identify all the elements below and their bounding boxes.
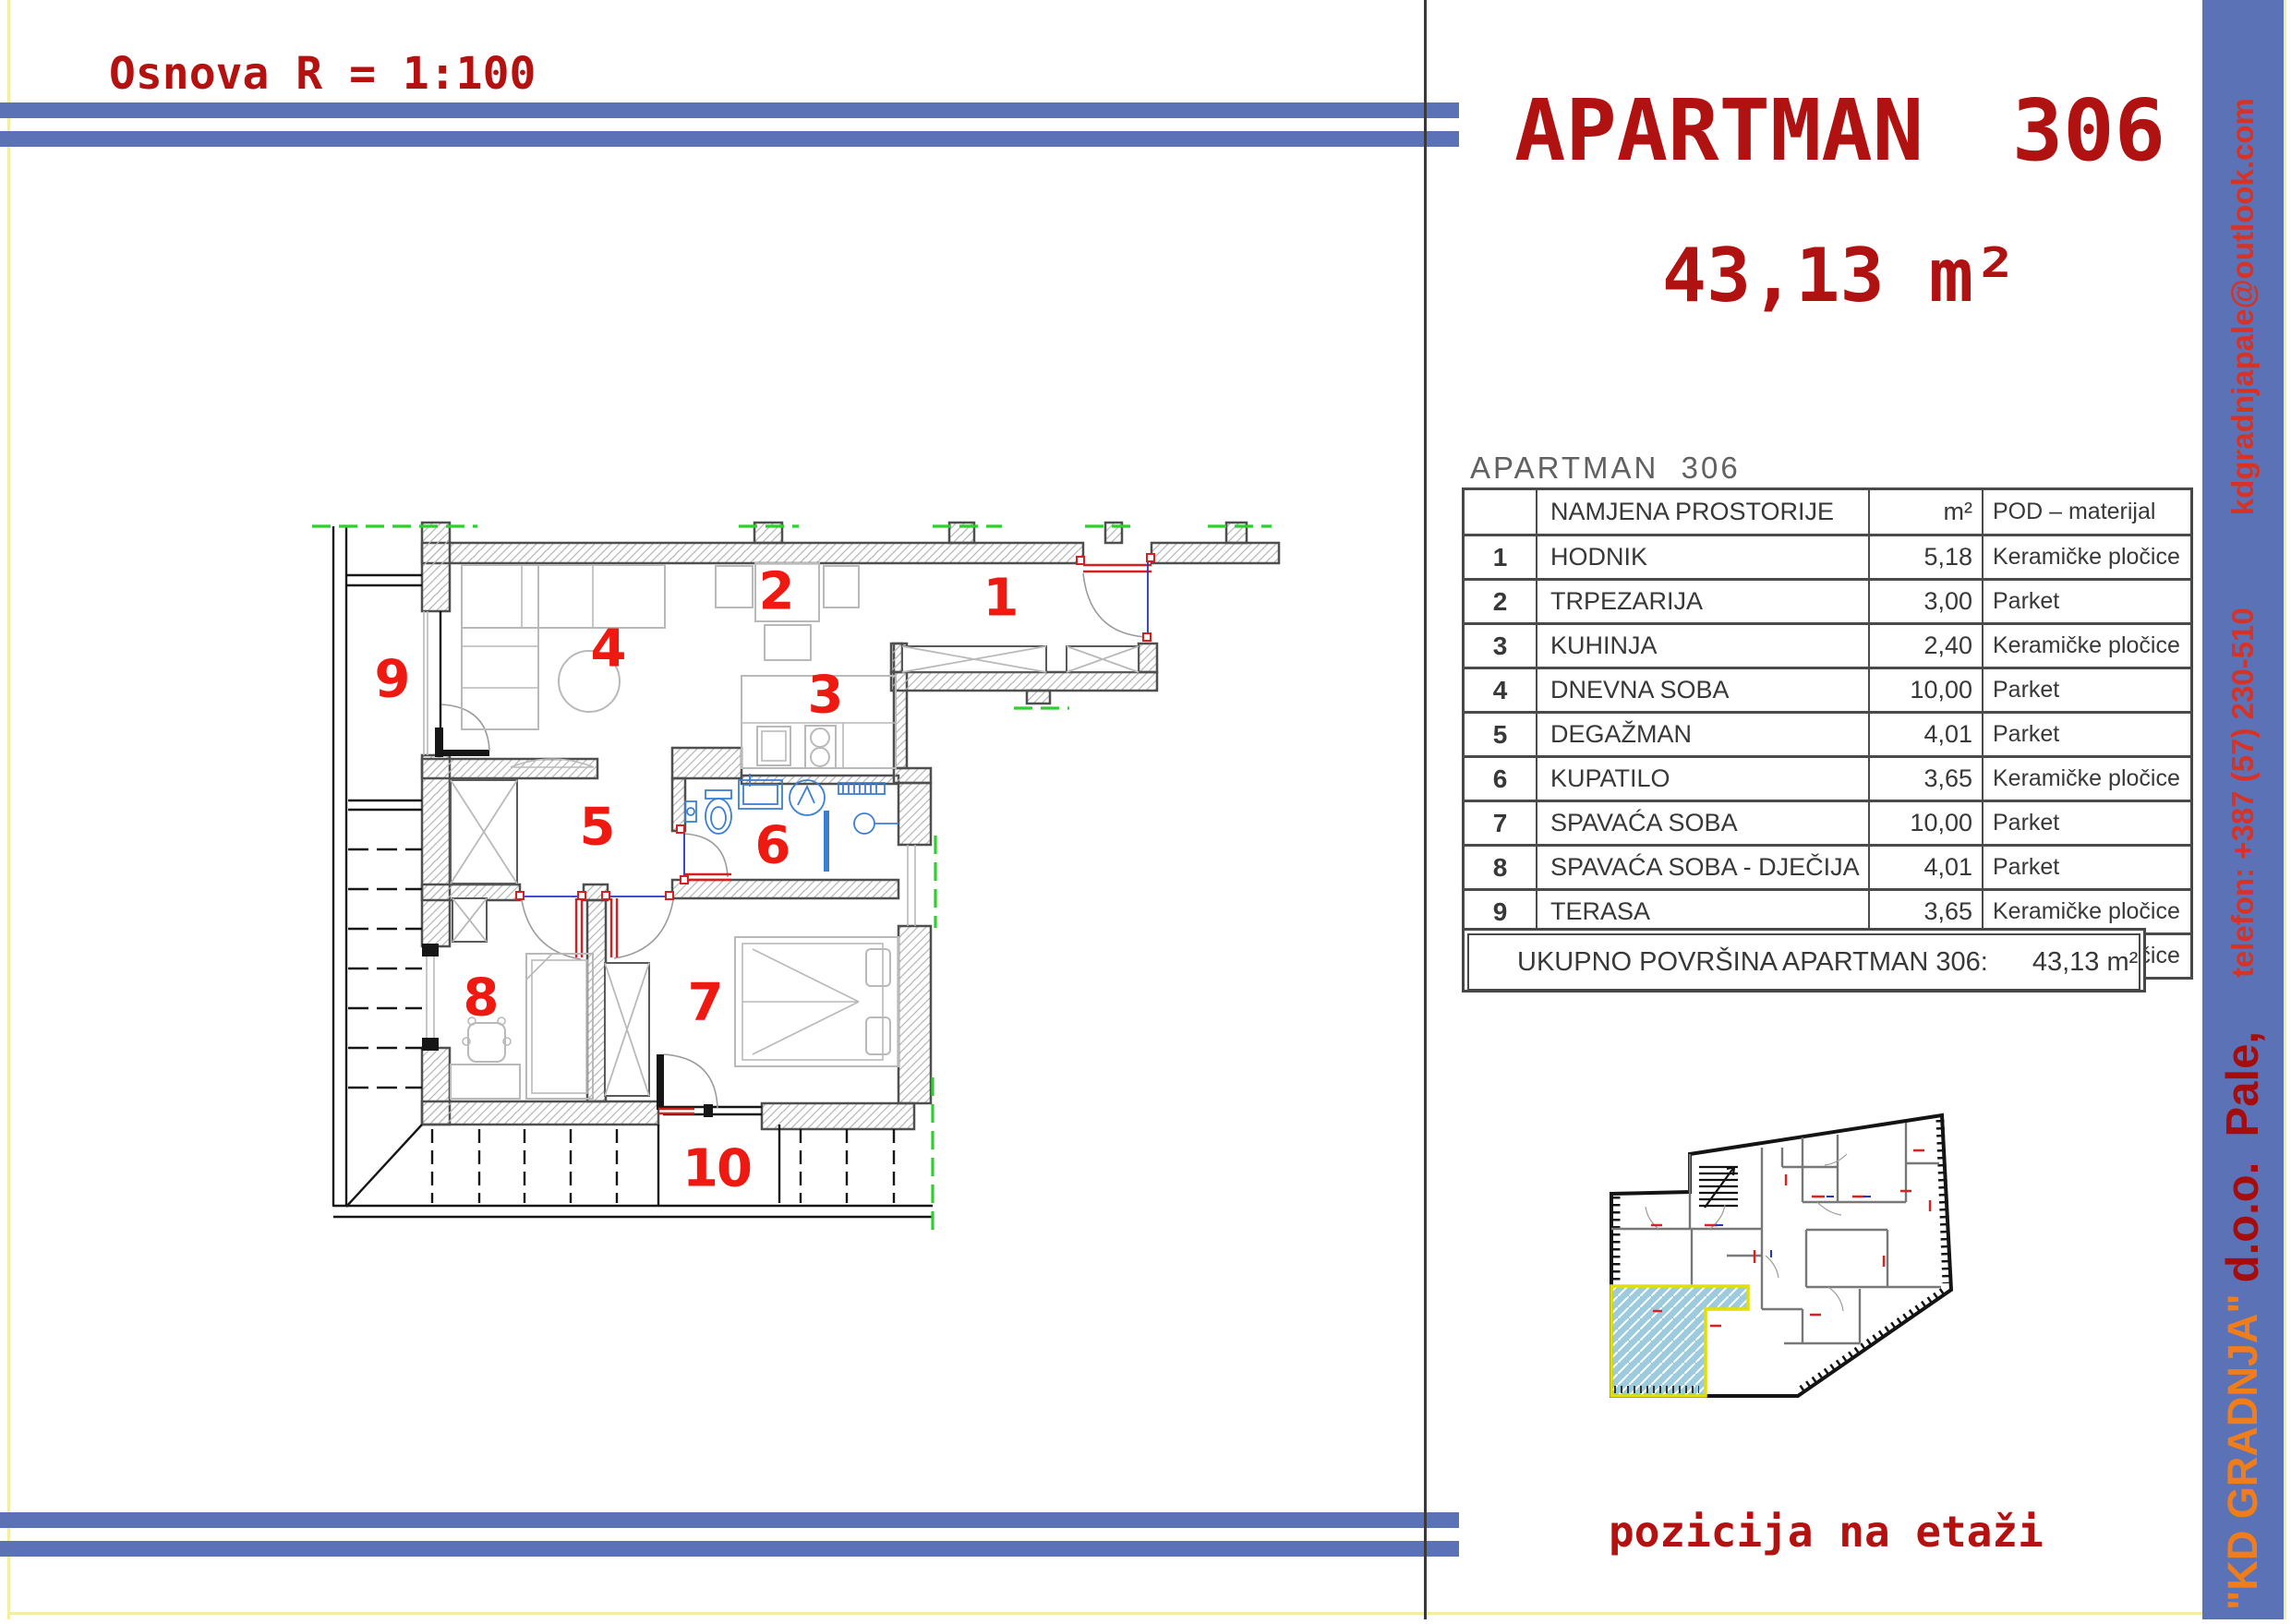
room-label-7: 7 xyxy=(688,973,722,1033)
room-label-6: 6 xyxy=(755,816,790,876)
door-swings xyxy=(441,554,1154,1113)
room-label-4: 4 xyxy=(591,620,625,680)
floor-plan-drawing xyxy=(0,0,2291,1619)
bathroom-fixtures xyxy=(685,774,898,872)
room-label-2: 2 xyxy=(759,562,793,622)
room-label-5: 5 xyxy=(580,798,614,858)
room-label-1: 1 xyxy=(983,569,1018,629)
main-plan-walls xyxy=(422,523,1279,1129)
room-label-3: 3 xyxy=(808,666,842,726)
room-label-9: 9 xyxy=(375,650,409,710)
mini-plan xyxy=(1611,1115,1951,1396)
room-label-8: 8 xyxy=(464,968,498,1029)
floor-plan: 12345678910 xyxy=(0,0,2291,1619)
room-label-10: 10 xyxy=(682,1139,751,1199)
closet-boxes xyxy=(451,646,1139,1096)
